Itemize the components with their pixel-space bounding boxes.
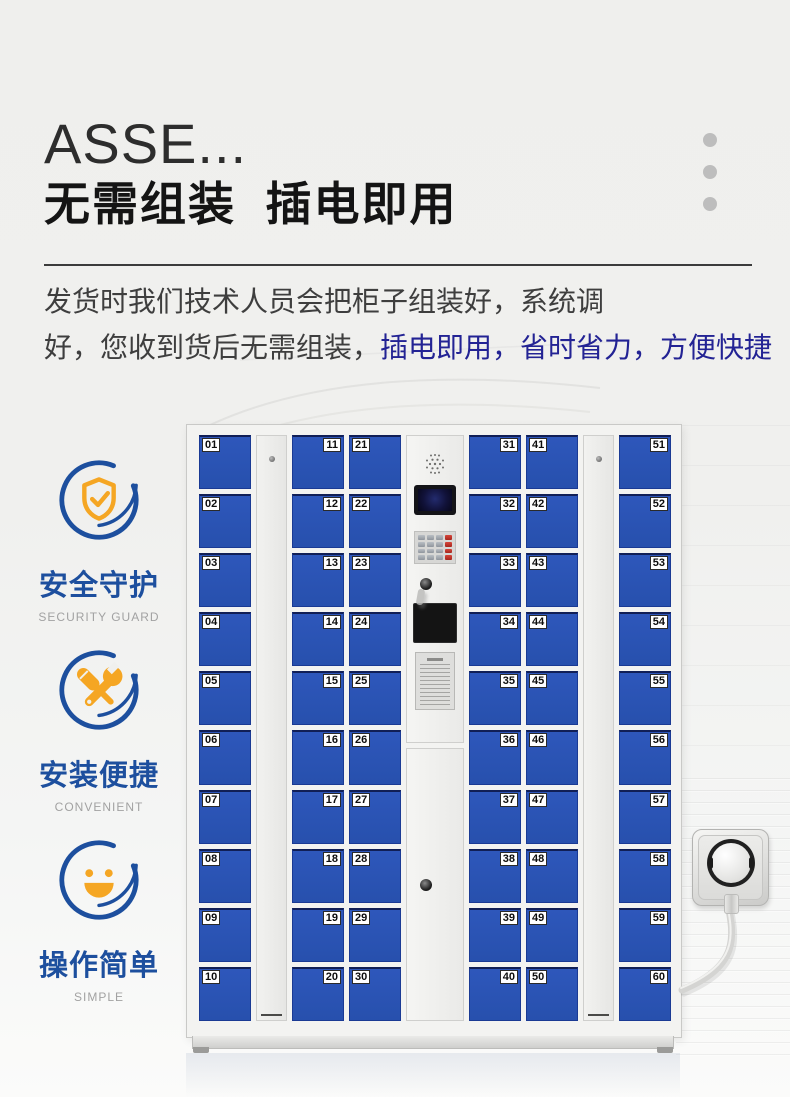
locker-door: 48 xyxy=(526,849,578,903)
feature-security: 安全守护 SECURITY GUARD xyxy=(35,456,163,624)
locker-door: 57 xyxy=(619,790,671,844)
door-number-label: 16 xyxy=(323,733,341,747)
locker-door: 18 xyxy=(292,849,344,903)
description-text: 发货时我们技术人员会把柜子组装好，系统调 好，您收到货后无需组装，插电即用，省时… xyxy=(44,279,780,371)
locker-door: 26 xyxy=(349,730,401,784)
door-number-label: 04 xyxy=(202,615,220,629)
door-number-label: 15 xyxy=(323,674,341,688)
locker-door: 39 xyxy=(469,908,521,962)
locker-door: 34 xyxy=(469,612,521,666)
decorative-dot xyxy=(703,197,717,211)
locker-door: 30 xyxy=(349,967,401,1021)
door-number-label: 20 xyxy=(323,970,341,984)
door-number-label: 02 xyxy=(202,497,220,511)
power-plug xyxy=(711,843,751,883)
door-number-label: 50 xyxy=(529,970,547,984)
locker-door: 45 xyxy=(526,671,578,725)
locker-cabinet-base xyxy=(192,1036,674,1049)
description-line2: 好，您收到货后无需组装，插电即用，省时省力，方便快捷 xyxy=(44,325,780,371)
page-subtitle: 无需组装 插电即用 xyxy=(44,181,458,227)
locker-door-column: 41424344454647484950 xyxy=(526,435,578,1021)
door-number-label: 22 xyxy=(352,497,370,511)
locker-door: 11 xyxy=(292,435,344,489)
door-number-label: 07 xyxy=(202,793,220,807)
door-number-label: 26 xyxy=(352,733,370,747)
keypad-red-key xyxy=(445,555,452,560)
locker-door: 24 xyxy=(349,612,401,666)
door-number-label: 58 xyxy=(650,852,668,866)
locker-door: 29 xyxy=(349,908,401,962)
locker-door: 46 xyxy=(526,730,578,784)
locker-door: 28 xyxy=(349,849,401,903)
door-number-label: 43 xyxy=(529,556,547,570)
locker-door: 58 xyxy=(619,849,671,903)
door-number-label: 18 xyxy=(323,852,341,866)
description-line1: 发货时我们技术人员会把柜子组装好，系统调 xyxy=(44,279,780,325)
locker-door: 09 xyxy=(199,908,251,962)
keypad-red-key xyxy=(445,542,452,547)
locker-door: 40 xyxy=(469,967,521,1021)
locker-door: 25 xyxy=(349,671,401,725)
feature-title: 安装便捷 xyxy=(35,752,163,794)
door-number-label: 12 xyxy=(323,497,341,511)
door-number-label: 25 xyxy=(352,674,370,688)
door-number-label: 37 xyxy=(500,793,518,807)
door-number-label: 27 xyxy=(352,793,370,807)
product-detail-page: ASSE... 无需组装 插电即用 发货时我们技术人员会把柜子组装好，系统调 好… xyxy=(0,0,790,1097)
locker-cabinet-body: 0102030405060708091011121314151617181920… xyxy=(199,435,669,1021)
door-number-label: 03 xyxy=(202,556,220,570)
locker-door: 04 xyxy=(199,612,251,666)
decorative-dot xyxy=(703,133,717,147)
door-number-label: 24 xyxy=(352,615,370,629)
locker-door: 42 xyxy=(526,494,578,548)
door-number-label: 17 xyxy=(323,793,341,807)
locker-door: 32 xyxy=(469,494,521,548)
keypad xyxy=(414,531,456,564)
locker-side-panel xyxy=(583,435,614,1021)
floor-reflection xyxy=(186,1053,680,1097)
shield-check-icon xyxy=(55,456,143,544)
locker-door: 08 xyxy=(199,849,251,903)
feature-subtitle: CONVENIENT xyxy=(35,800,163,814)
door-number-label: 57 xyxy=(650,793,668,807)
decorative-dot xyxy=(703,165,717,179)
door-number-label: 49 xyxy=(529,911,547,925)
description-line2-highlight: 插电即用，省时省力，方便快捷 xyxy=(380,332,772,363)
scanner-screen xyxy=(413,603,457,643)
door-number-label: 09 xyxy=(202,911,220,925)
door-number-label: 32 xyxy=(500,497,518,511)
door-number-label: 14 xyxy=(323,615,341,629)
keypad-key xyxy=(436,542,443,547)
door-number-label: 23 xyxy=(352,556,370,570)
feature-operation: 操作简单 SIMPLE xyxy=(35,836,163,1004)
door-number-label: 48 xyxy=(529,852,547,866)
locker-control-column xyxy=(406,435,464,1021)
door-number-label: 11 xyxy=(323,438,341,452)
door-number-label: 52 xyxy=(650,497,668,511)
locker-door: 53 xyxy=(619,553,671,607)
locker-door: 22 xyxy=(349,494,401,548)
locker-side-panel xyxy=(256,435,287,1021)
keypad-key xyxy=(436,549,443,554)
screw-icon xyxy=(269,456,275,462)
feature-subtitle: SIMPLE xyxy=(35,990,163,1004)
door-number-label: 45 xyxy=(529,674,547,688)
door-number-label: 10 xyxy=(202,970,220,984)
control-lower-door xyxy=(406,748,464,1021)
door-number-label: 33 xyxy=(500,556,518,570)
door-number-label: 54 xyxy=(650,615,668,629)
power-cable xyxy=(648,898,788,1003)
keypad-key xyxy=(418,549,425,554)
door-number-label: 34 xyxy=(500,615,518,629)
panel-slot xyxy=(261,1014,281,1016)
locker-door: 14 xyxy=(292,612,344,666)
locker-door: 20 xyxy=(292,967,344,1021)
keypad-key xyxy=(427,555,434,560)
locker-door: 15 xyxy=(292,671,344,725)
notice-label xyxy=(415,652,455,710)
locker-cabinet: 0102030405060708091011121314151617181920… xyxy=(186,424,682,1038)
locker-door: 21 xyxy=(349,435,401,489)
locker-door: 23 xyxy=(349,553,401,607)
locker-door: 07 xyxy=(199,790,251,844)
locker-door: 10 xyxy=(199,967,251,1021)
door-number-label: 42 xyxy=(529,497,547,511)
locker-door: 02 xyxy=(199,494,251,548)
plug-neck xyxy=(724,894,739,914)
locker-door: 33 xyxy=(469,553,521,607)
keypad-key xyxy=(427,542,434,547)
locker-door: 51 xyxy=(619,435,671,489)
door-number-label: 28 xyxy=(352,852,370,866)
locker-door: 01 xyxy=(199,435,251,489)
locker-door: 19 xyxy=(292,908,344,962)
control-panel xyxy=(406,435,464,743)
locker-door: 16 xyxy=(292,730,344,784)
panel-slot xyxy=(588,1014,608,1016)
door-number-label: 39 xyxy=(500,911,518,925)
keypad-key xyxy=(418,535,425,540)
door-number-label: 06 xyxy=(202,733,220,747)
locker-door-column: 11121314151617181920 xyxy=(292,435,344,1021)
keypad-red-key xyxy=(445,535,452,540)
description-line2-dark: 好，您收到货后无需组装， xyxy=(44,332,380,363)
locker-door: 44 xyxy=(526,612,578,666)
decorative-dots xyxy=(703,133,717,211)
door-number-label: 55 xyxy=(650,674,668,688)
locker-door: 50 xyxy=(526,967,578,1021)
door-number-label: 41 xyxy=(529,438,547,452)
locker-door: 38 xyxy=(469,849,521,903)
door-number-label: 46 xyxy=(529,733,547,747)
locker-door: 35 xyxy=(469,671,521,725)
door-number-label: 01 xyxy=(202,438,220,452)
locker-door: 49 xyxy=(526,908,578,962)
door-number-label: 56 xyxy=(650,733,668,747)
keypad-red-key xyxy=(445,549,452,554)
door-number-label: 31 xyxy=(500,438,518,452)
door-number-label: 05 xyxy=(202,674,220,688)
door-number-label: 51 xyxy=(650,438,668,452)
wall-socket xyxy=(692,829,769,906)
locker-door: 56 xyxy=(619,730,671,784)
door-number-label: 13 xyxy=(323,556,341,570)
locker-door: 54 xyxy=(619,612,671,666)
keypad-key xyxy=(418,542,425,547)
locker-door: 43 xyxy=(526,553,578,607)
divider-line xyxy=(44,264,752,266)
locker-door-column: 31323334353637383940 xyxy=(469,435,521,1021)
keypad-key xyxy=(418,555,425,560)
locker-door: 13 xyxy=(292,553,344,607)
door-number-label: 53 xyxy=(650,556,668,570)
door-number-label: 47 xyxy=(529,793,547,807)
door-number-label: 36 xyxy=(500,733,518,747)
keypad-key xyxy=(427,535,434,540)
feature-subtitle: SECURITY GUARD xyxy=(35,610,163,624)
locker-door: 31 xyxy=(469,435,521,489)
door-number-label: 21 xyxy=(352,438,370,452)
locker-door-column: 21222324252627282930 xyxy=(349,435,401,1021)
locker-door: 52 xyxy=(619,494,671,548)
locker-door: 17 xyxy=(292,790,344,844)
door-number-label: 40 xyxy=(500,970,518,984)
door-number-label: 30 xyxy=(352,970,370,984)
speaker-grille-icon xyxy=(422,452,448,476)
door-number-label: 29 xyxy=(352,911,370,925)
locker-door: 36 xyxy=(469,730,521,784)
locker-door: 05 xyxy=(199,671,251,725)
keypad-key xyxy=(436,535,443,540)
locker-door: 41 xyxy=(526,435,578,489)
locker-door: 06 xyxy=(199,730,251,784)
door-number-label: 19 xyxy=(323,911,341,925)
door-number-label: 44 xyxy=(529,615,547,629)
locker-door: 03 xyxy=(199,553,251,607)
feature-title: 操作简单 xyxy=(35,942,163,984)
locker-door: 27 xyxy=(349,790,401,844)
tools-icon xyxy=(55,646,143,734)
page-title: ASSE... xyxy=(44,116,247,172)
keypad-key xyxy=(427,549,434,554)
screw-icon xyxy=(596,456,602,462)
locker-door: 37 xyxy=(469,790,521,844)
locker-door: 12 xyxy=(292,494,344,548)
smiley-icon xyxy=(55,836,143,924)
locker-door: 47 xyxy=(526,790,578,844)
keypad-key xyxy=(436,555,443,560)
keyhole-icon xyxy=(420,879,432,891)
feature-installation: 安装便捷 CONVENIENT xyxy=(35,646,163,814)
locker-door: 55 xyxy=(619,671,671,725)
door-number-label: 08 xyxy=(202,852,220,866)
door-number-label: 38 xyxy=(500,852,518,866)
wall-panel-lines xyxy=(676,425,790,785)
door-number-label: 35 xyxy=(500,674,518,688)
locker-door-column: 01020304050607080910 xyxy=(199,435,251,1021)
lcd-screen xyxy=(414,485,456,515)
feature-title: 安全守护 xyxy=(35,562,163,604)
